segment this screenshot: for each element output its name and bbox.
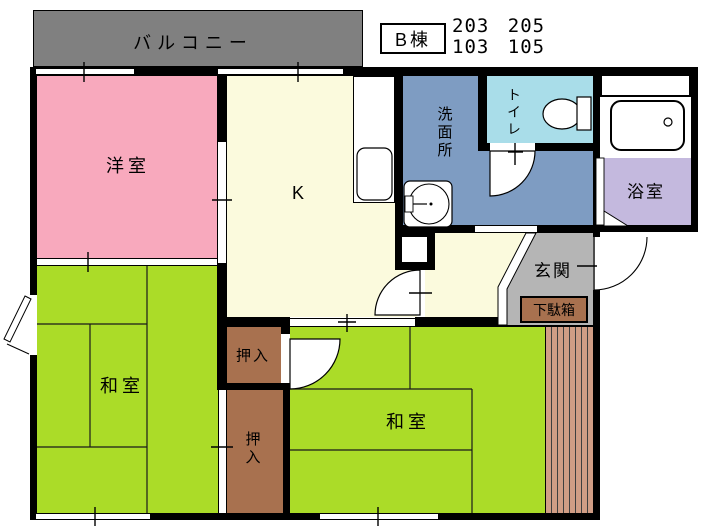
closet-lower-label: 押入	[245, 431, 260, 467]
toilet-bowl	[543, 99, 581, 129]
unit-numbers-row2: 103 105	[452, 37, 545, 58]
entrance-label: 玄関	[534, 263, 572, 280]
kitchen-sink	[357, 148, 392, 200]
washbasin-drain	[430, 203, 433, 206]
building-label-box: B棟	[380, 23, 446, 54]
shoe-cabinet-box: 下駄箱	[520, 296, 588, 323]
unit-numbers-row1: 203 205	[452, 16, 545, 37]
floor-plan: 下駄箱 B棟 203 205 103 105 バルコニー 洋室 K 洗面所 トイ…	[0, 0, 705, 528]
bathroom-label: 浴室	[627, 184, 665, 201]
western-room-label: 洋室	[106, 157, 150, 175]
closet-upper-door-swing	[290, 339, 340, 389]
toilet-label: トイレ	[507, 88, 521, 139]
toilet-door-swing	[490, 151, 535, 196]
bay-window-line	[7, 344, 29, 354]
bay-window-leaf	[4, 296, 31, 342]
closet-upper-label: 押入	[236, 349, 270, 364]
kitchen-label: K	[292, 184, 304, 202]
washbasin-faucet	[405, 196, 413, 212]
bathtub-drain	[664, 118, 672, 126]
washroom-label: 洗面所	[437, 106, 452, 160]
unit-numbers: 203 205 103 105	[452, 16, 545, 58]
japanese-room-right-label: 和室	[386, 413, 430, 431]
building-label: B棟	[395, 26, 431, 52]
bathtub	[611, 101, 684, 150]
shoe-cabinet-label: 下駄箱	[533, 300, 575, 320]
bath-folding-door	[604, 211, 628, 226]
toilet-tank	[577, 97, 591, 130]
entrance-door-swing	[594, 237, 647, 290]
japanese-room-left-label: 和室	[100, 377, 144, 395]
bath-door-track	[596, 158, 604, 225]
plan-overlay	[0, 0, 705, 528]
balcony-label: バルコニー	[133, 34, 253, 52]
